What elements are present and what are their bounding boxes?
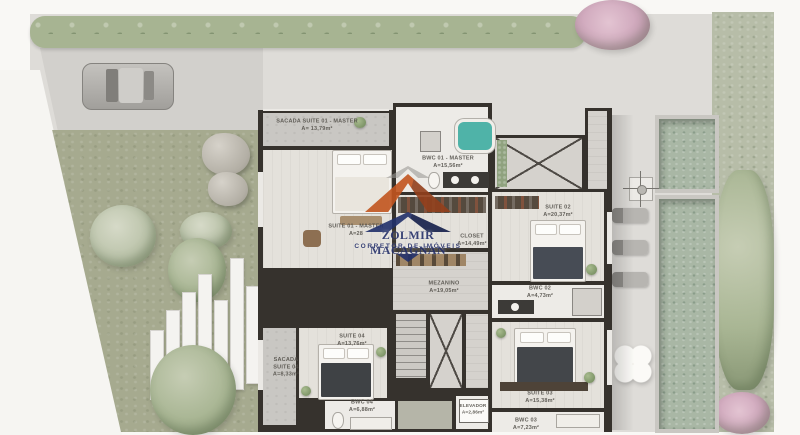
shower-master xyxy=(420,131,441,152)
car-rear-window xyxy=(144,71,154,100)
label-bwc03: BWC 03 A=7,23m² xyxy=(513,418,539,432)
label-bwc04: BWC 04 A=6,88m² xyxy=(349,400,375,414)
pillow xyxy=(347,348,369,359)
stairs xyxy=(396,314,426,378)
plant xyxy=(496,328,506,338)
vanity-bwc03 xyxy=(556,414,600,428)
pillow xyxy=(535,224,557,235)
pillow xyxy=(337,154,361,165)
plunge-pool-upper xyxy=(655,115,719,193)
balcony-railing xyxy=(263,109,389,111)
watermark-subtitle: CORRETOR DE IMÓVEIS xyxy=(352,243,464,250)
basin xyxy=(471,176,479,184)
hatched-void xyxy=(398,401,452,429)
label-suite02: SUITE 02 A=20,37m² xyxy=(543,205,572,219)
basin xyxy=(511,303,519,311)
armchair xyxy=(303,230,321,247)
sideboard-suite03 xyxy=(500,382,588,391)
blanket xyxy=(517,347,573,383)
window xyxy=(258,340,263,390)
boulder xyxy=(202,133,250,175)
window xyxy=(258,172,263,227)
shower-bwc02 xyxy=(572,288,602,316)
window xyxy=(607,212,612,264)
label-suite03: SUITE 03 A=15,38m² xyxy=(525,391,554,405)
watermark-triangle xyxy=(397,254,419,262)
vanity-bwc02 xyxy=(498,300,534,314)
blanket xyxy=(533,247,583,279)
blanket xyxy=(321,363,371,397)
pink-tree xyxy=(575,0,650,50)
pillow xyxy=(363,154,387,165)
pillow xyxy=(520,332,544,343)
car-roof xyxy=(119,68,143,103)
label-mezanino: MEZANINO A=19,05m² xyxy=(429,281,460,295)
boulder xyxy=(208,172,248,206)
bed-suite04 xyxy=(318,344,374,400)
car-windshield xyxy=(106,69,118,102)
plant xyxy=(301,386,311,396)
bathtub-master xyxy=(455,119,495,153)
plant xyxy=(584,372,595,383)
plant xyxy=(586,264,597,275)
dresser-suite02 xyxy=(495,196,539,209)
room-terrace xyxy=(588,111,607,189)
watermark-logo: ZOLMIR MACAGNAN CORRETOR DE IMÓVEIS xyxy=(352,166,464,266)
hedge xyxy=(30,16,586,48)
label-sacada-suite04: SACADA SUITE 04 A=8,33m² xyxy=(273,357,299,379)
pink-flowers xyxy=(714,392,770,434)
tree xyxy=(90,205,156,267)
toilet-bwc04 xyxy=(332,412,344,429)
planter xyxy=(497,140,507,187)
label-elevador: ELEVADOR A=2,86m² xyxy=(460,404,487,416)
tree xyxy=(150,345,236,435)
car xyxy=(82,63,174,110)
pillow xyxy=(323,348,345,359)
pillow xyxy=(547,332,571,343)
window xyxy=(607,330,612,385)
bush xyxy=(714,170,774,390)
label-suite04: SUITE 04 A=13,76m² xyxy=(337,334,366,348)
pillow xyxy=(559,224,581,235)
label-bwc02: BWC 02 A=4,73m² xyxy=(527,286,553,300)
bed-suite02 xyxy=(530,220,586,282)
tree xyxy=(168,238,226,302)
vanity-bwc04 xyxy=(350,417,392,430)
void-skylight xyxy=(495,138,582,189)
bed-suite03 xyxy=(514,328,576,386)
building-shadow xyxy=(612,115,634,430)
label-sacada-suite01: SACADA SUITE 01 - MASTER A= 13,79m² xyxy=(276,119,358,133)
watermark-chevron-orange xyxy=(365,174,451,212)
plant xyxy=(376,347,386,357)
lap-pool xyxy=(655,195,719,433)
stair-landing xyxy=(466,314,488,388)
stepping-slat xyxy=(230,258,244,390)
umbrella-center xyxy=(637,185,647,195)
site-plan: SACADA SUITE 01 - MASTER A= 13,79m² SUIT… xyxy=(0,0,800,435)
stair-void xyxy=(430,314,462,388)
